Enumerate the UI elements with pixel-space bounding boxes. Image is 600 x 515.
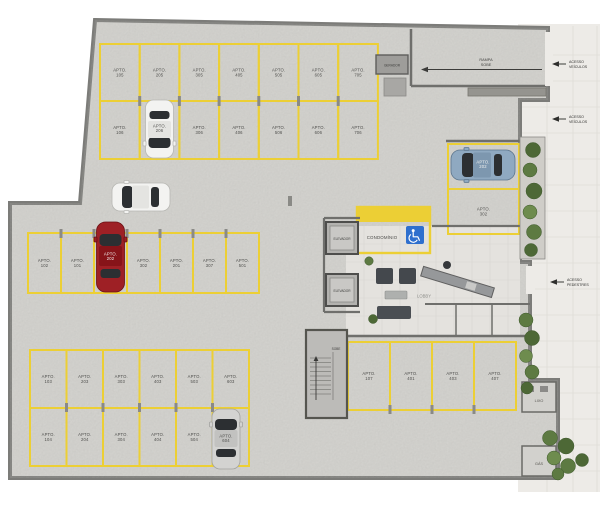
parking-spot-number: 504 bbox=[191, 437, 199, 442]
elevator-1: ELEVADOR bbox=[326, 222, 358, 254]
vehicle-entry-gap bbox=[545, 32, 553, 86]
parking-spot-number: 102 bbox=[41, 263, 49, 268]
ramp-direction-label: SOBE bbox=[481, 63, 492, 67]
generator-label: GERADOR bbox=[384, 64, 401, 68]
parking-spot-number: 205 bbox=[156, 73, 164, 78]
armchair bbox=[399, 268, 416, 284]
receptionist bbox=[443, 261, 451, 269]
parking-spot-number: 204 bbox=[81, 437, 89, 442]
lobby-label: LOBBY bbox=[417, 294, 431, 299]
wheelchair-icon bbox=[406, 226, 424, 244]
yellow-hatch-band bbox=[357, 207, 430, 222]
lobby-plant bbox=[369, 315, 378, 324]
elevator-2: ELEVADOR bbox=[326, 274, 358, 306]
car-white-aisle bbox=[112, 181, 170, 214]
car-spot-number: 604 bbox=[222, 438, 230, 443]
parking-spot-number: 405 bbox=[235, 73, 243, 78]
pedestrian-entry-gap bbox=[526, 266, 535, 294]
parking-spot-number: 104 bbox=[45, 437, 53, 442]
access-pedestrians-label-2: PEDESTRES bbox=[567, 283, 589, 287]
parking-spot-number: 201 bbox=[173, 263, 181, 268]
parking-spot-number: 306 bbox=[196, 130, 204, 135]
parking-spot-number: 105 bbox=[116, 73, 124, 78]
parking-spot-number: 107 bbox=[365, 376, 373, 381]
floor-plan-svg: APTO.105APTO.205APTO.305APTO.405APTO.505… bbox=[0, 0, 600, 515]
lobby-plant bbox=[365, 257, 373, 265]
parking-spot-number: 404 bbox=[154, 437, 162, 442]
coffee-table bbox=[385, 291, 407, 299]
parking-spot-number: 401 bbox=[407, 376, 415, 381]
stair-direction-label: SOBE bbox=[332, 347, 341, 351]
gas-room-label: GÁS bbox=[535, 462, 543, 466]
parking-spot-number: 403 bbox=[154, 379, 162, 384]
access-pedestrians-label-1: ACESSO bbox=[567, 278, 582, 282]
parking-spot-number: 503 bbox=[191, 379, 199, 384]
parking-spot-number: 501 bbox=[239, 263, 247, 268]
parking-spot-number: 706 bbox=[354, 130, 362, 135]
parking-spot-number: 705 bbox=[354, 73, 362, 78]
elevator-label: ELEVADOR bbox=[333, 237, 351, 241]
parking-spot-number: 305 bbox=[196, 73, 204, 78]
staircase: SOBE bbox=[306, 330, 347, 418]
parking-spot-number: 307 bbox=[206, 263, 214, 268]
parking-spot-number: 302 bbox=[140, 263, 148, 268]
ramp-curb bbox=[468, 88, 546, 96]
parking-spot-number: 103 bbox=[45, 379, 53, 384]
parking-spot-number: 406 bbox=[235, 130, 243, 135]
trash-room-label: LIXO bbox=[535, 399, 544, 403]
armchair bbox=[376, 268, 393, 284]
generator-equipment bbox=[384, 78, 406, 96]
parking-spot-number: 203 bbox=[81, 379, 89, 384]
condominio-label: CONDOMÍNIO bbox=[367, 235, 398, 240]
sofa bbox=[377, 306, 411, 319]
access-vehicles-label-1: ACESSO bbox=[569, 60, 584, 64]
parking-spot-number: 505 bbox=[275, 73, 283, 78]
parking-spot-number: 606 bbox=[315, 130, 323, 135]
car-spot-number: 206 bbox=[156, 128, 164, 133]
access-vehicles-label-2: VEÍCULOS bbox=[569, 65, 588, 69]
parking-spot-number: 605 bbox=[315, 73, 323, 78]
car-spot-number: 202 bbox=[107, 256, 115, 261]
car-spot-number: 202 bbox=[479, 164, 487, 169]
parking-spot-number: 603 bbox=[227, 379, 235, 384]
parking-spot-number: 303 bbox=[118, 379, 126, 384]
elevator-label: ELEVADOR bbox=[333, 289, 351, 293]
parking-spot-number: 106 bbox=[116, 130, 124, 135]
parking-spot-number: 101 bbox=[74, 263, 82, 268]
parking-spot-number: 302 bbox=[480, 212, 488, 217]
parking-spot-number: 407 bbox=[491, 376, 499, 381]
floor-plan-canvas: APTO.105APTO.205APTO.305APTO.405APTO.505… bbox=[0, 0, 600, 515]
parking-spot-number: 506 bbox=[275, 130, 283, 135]
access-vehicles-label-2: VEÍCULOS bbox=[569, 120, 588, 124]
access-vehicles-label-1: ACESSO bbox=[569, 115, 584, 119]
ramp-label: RAMPA bbox=[479, 58, 493, 62]
parking-spot-number: 304 bbox=[118, 437, 126, 442]
parking-spot-number: 403 bbox=[449, 376, 457, 381]
